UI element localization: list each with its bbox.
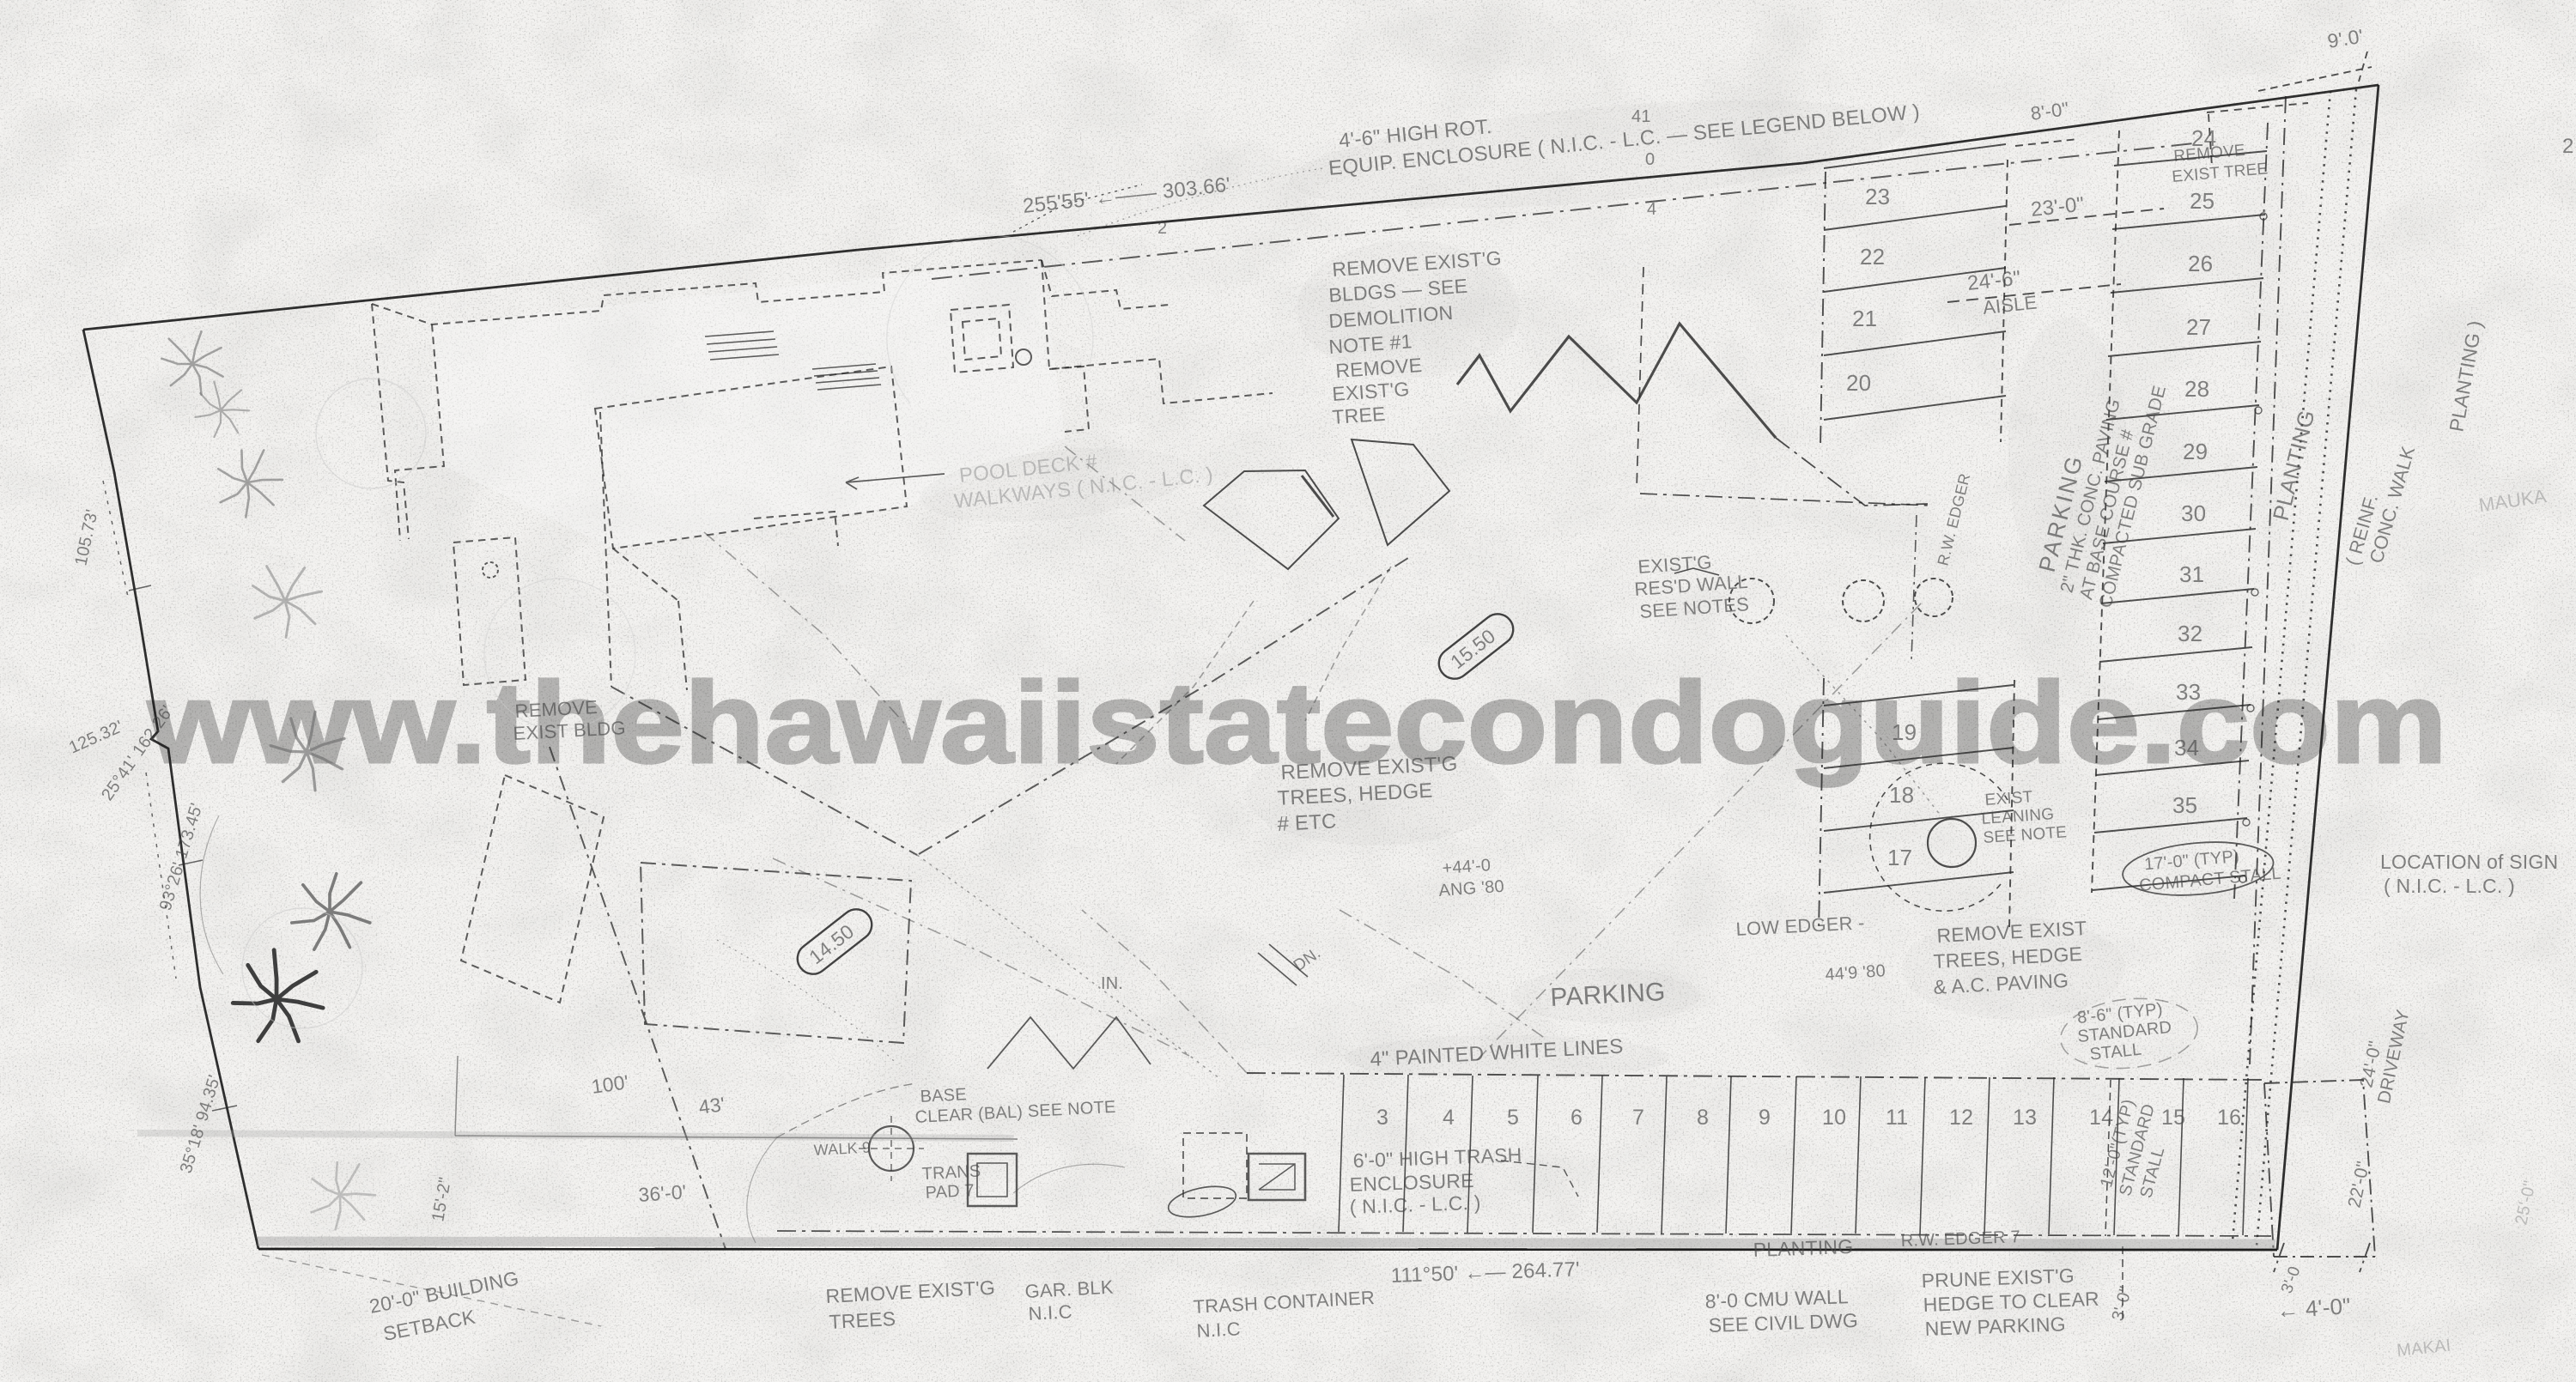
svg-text:23: 23: [1865, 184, 1890, 209]
svg-text:6: 6: [1571, 1106, 1583, 1130]
svg-text:BASE: BASE: [920, 1085, 967, 1106]
svg-text:34: 34: [2174, 735, 2199, 761]
svg-text:33: 33: [2176, 679, 2201, 705]
svg-text:+44'-0: +44'-0: [1442, 856, 1492, 878]
svg-text:43': 43': [697, 1093, 726, 1118]
svg-text:29: 29: [2183, 439, 2208, 464]
svg-text:26: 26: [2188, 251, 2213, 276]
svg-text:# ETC: # ETC: [1277, 809, 1337, 836]
svg-text:WALK 9: WALK 9: [813, 1139, 872, 1159]
svg-text:PARKING: PARKING: [1550, 978, 1667, 1012]
svg-text:4: 4: [1443, 1106, 1455, 1130]
svg-text:REMOVE: REMOVE: [514, 696, 598, 722]
svg-text:13: 13: [2013, 1106, 2037, 1130]
svg-text:7: 7: [1632, 1106, 1644, 1130]
svg-text:36'-0': 36'-0': [638, 1180, 688, 1206]
svg-text:N.I.C: N.I.C: [1196, 1318, 1241, 1342]
svg-text:N.I.C: N.I.C: [1028, 1300, 1072, 1324]
svg-text:11: 11: [1886, 1106, 1908, 1130]
svg-text:9: 9: [1759, 1106, 1771, 1130]
svg-text:3: 3: [1376, 1106, 1388, 1130]
svg-text:← 4'-0": ← 4'-0": [2275, 1293, 2351, 1324]
svg-text:16: 16: [2217, 1106, 2241, 1130]
svg-text:17: 17: [1887, 845, 1912, 870]
svg-text:14: 14: [2089, 1106, 2113, 1130]
svg-text:2: 2: [1157, 219, 1167, 238]
svg-text:20: 20: [1846, 370, 1871, 396]
svg-text:8: 8: [1697, 1106, 1709, 1130]
svg-text:41: 41: [1631, 107, 1651, 126]
svg-text:5: 5: [1507, 1106, 1519, 1130]
svg-text:30: 30: [2181, 500, 2206, 526]
svg-text:19: 19: [1892, 719, 1917, 745]
svg-text:2: 2: [2562, 135, 2574, 158]
svg-text:TREES: TREES: [829, 1307, 896, 1333]
svg-text:10: 10: [1822, 1106, 1846, 1130]
svg-text:4: 4: [1647, 200, 1656, 219]
svg-text:EXIST: EXIST: [1984, 788, 2033, 809]
svg-text:PLANTING: PLANTING: [1753, 1235, 1853, 1261]
svg-text:15: 15: [2161, 1106, 2185, 1130]
svg-text:( N.I.C. - L.C. ): ( N.I.C. - L.C. ): [2384, 875, 2515, 897]
svg-text:21: 21: [1852, 306, 1877, 331]
svg-text:25: 25: [2190, 188, 2215, 214]
svg-text:0: 0: [1645, 150, 1655, 169]
svg-text:PAD 7: PAD 7: [925, 1181, 975, 1203]
svg-text:( N.I.C. - L.C. ): ( N.I.C. - L.C. ): [1349, 1191, 1481, 1218]
svg-text:28: 28: [2184, 376, 2209, 402]
svg-text:TREE: TREE: [1332, 403, 1387, 428]
svg-text:12: 12: [1949, 1106, 1973, 1130]
svg-text:18: 18: [1889, 782, 1914, 808]
svg-text:35: 35: [2172, 792, 2197, 818]
svg-text:22: 22: [1860, 244, 1885, 270]
svg-text:32: 32: [2178, 621, 2202, 646]
svg-text:LOCATION of SIGN: LOCATION of SIGN: [2380, 851, 2558, 873]
svg-text:31: 31: [2179, 561, 2204, 587]
svg-text:IN.: IN.: [1101, 974, 1123, 993]
svg-text:27: 27: [2186, 314, 2211, 340]
